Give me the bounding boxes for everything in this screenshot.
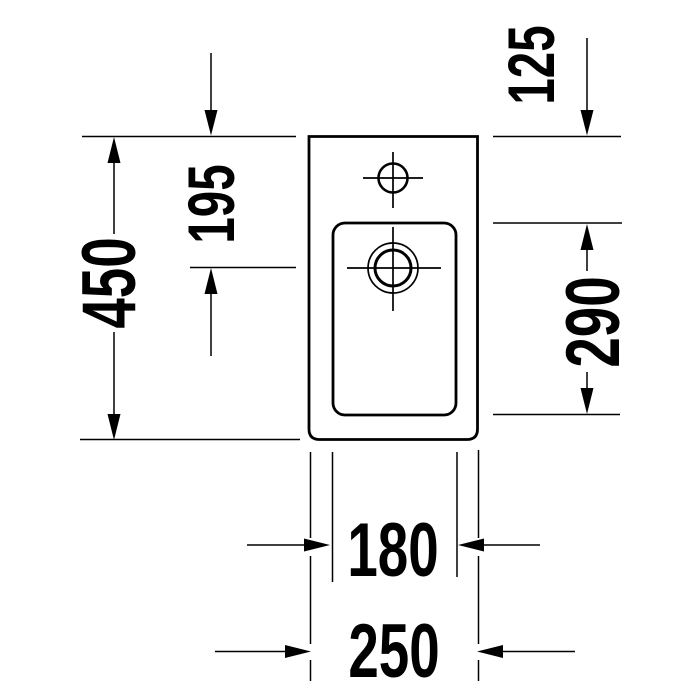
- arrow-180-left-pointing: [458, 539, 484, 552]
- dim-label-125: 125: [498, 25, 564, 104]
- arrow-195-up: [205, 268, 218, 294]
- dim-label-290: 290: [556, 276, 632, 367]
- arrow-290-down: [581, 388, 594, 414]
- dim-label-195: 195: [178, 164, 244, 243]
- arrow-450-down: [108, 414, 121, 440]
- dim-label-450: 450: [72, 237, 148, 328]
- dim-label-180: 180: [347, 513, 438, 589]
- arrow-180-right-pointing: [304, 539, 330, 552]
- technical-drawing-canvas: 450 195 125 290 180 250: [0, 0, 700, 700]
- arrow-250-right-pointing: [285, 645, 311, 658]
- dim-label-250: 250: [348, 614, 439, 690]
- arrow-250-left-pointing: [477, 645, 503, 658]
- arrow-125-down: [581, 110, 594, 136]
- arrow-450-up: [108, 137, 121, 163]
- arrow-290-up: [581, 224, 594, 250]
- arrow-195-down: [205, 110, 218, 136]
- basin-bowl-outline: [333, 223, 456, 415]
